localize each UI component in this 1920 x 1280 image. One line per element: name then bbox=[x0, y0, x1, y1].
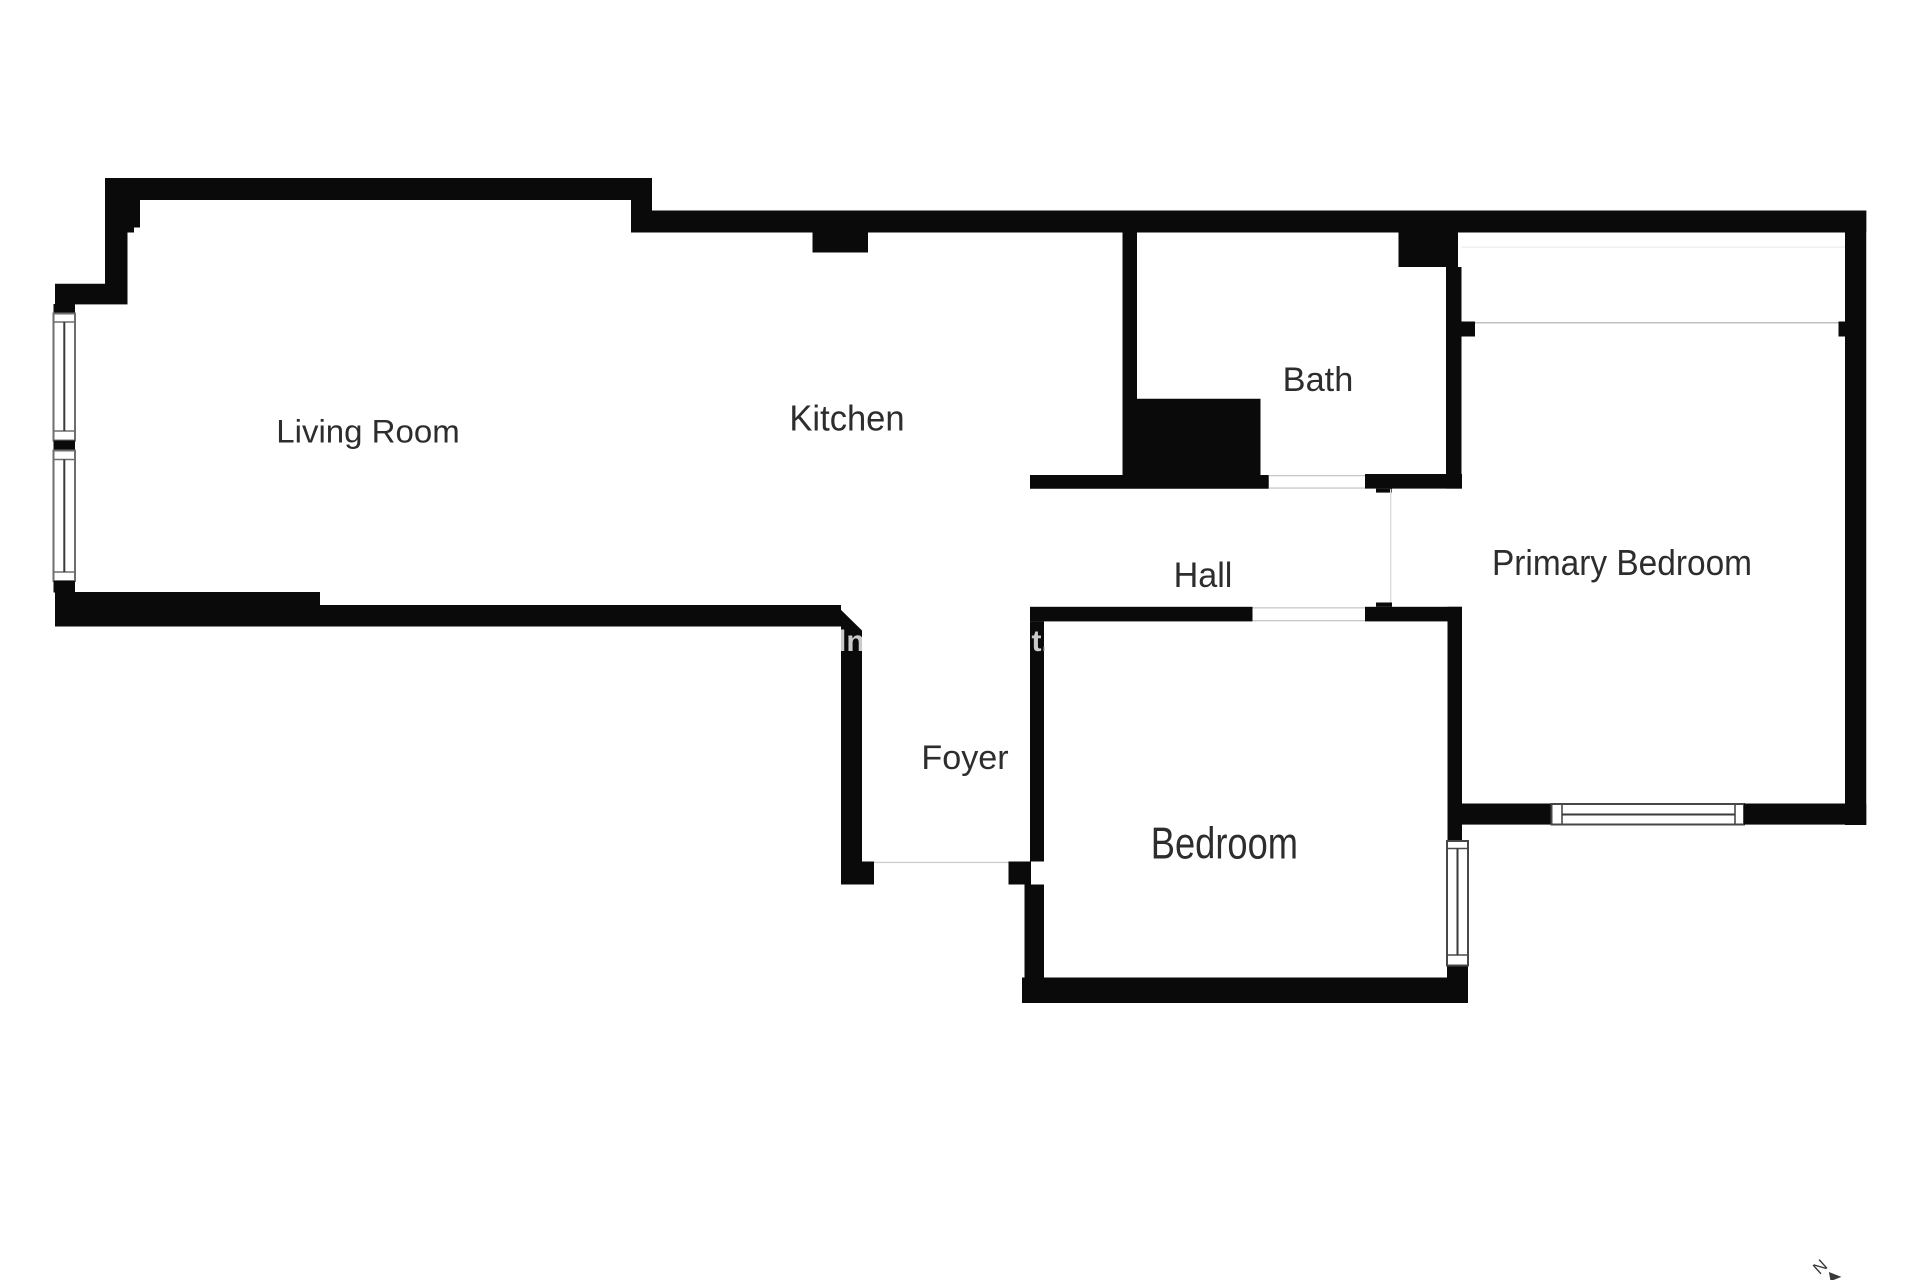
svg-text:ln: ln bbox=[838, 625, 865, 658]
svg-text:t.: t. bbox=[1032, 625, 1050, 658]
svg-text:Bedroom: Bedroom bbox=[1151, 820, 1298, 869]
svg-text:Foyer: Foyer bbox=[921, 739, 1008, 777]
svg-text:Hall: Hall bbox=[1174, 556, 1233, 595]
svg-text:Living Room: Living Room bbox=[276, 412, 459, 449]
svg-text:N: N bbox=[1809, 1256, 1831, 1278]
svg-text:Bath: Bath bbox=[1283, 361, 1354, 399]
svg-text:Primary Bedroom: Primary Bedroom bbox=[1492, 542, 1752, 583]
svg-text:Kitchen: Kitchen bbox=[789, 399, 904, 439]
